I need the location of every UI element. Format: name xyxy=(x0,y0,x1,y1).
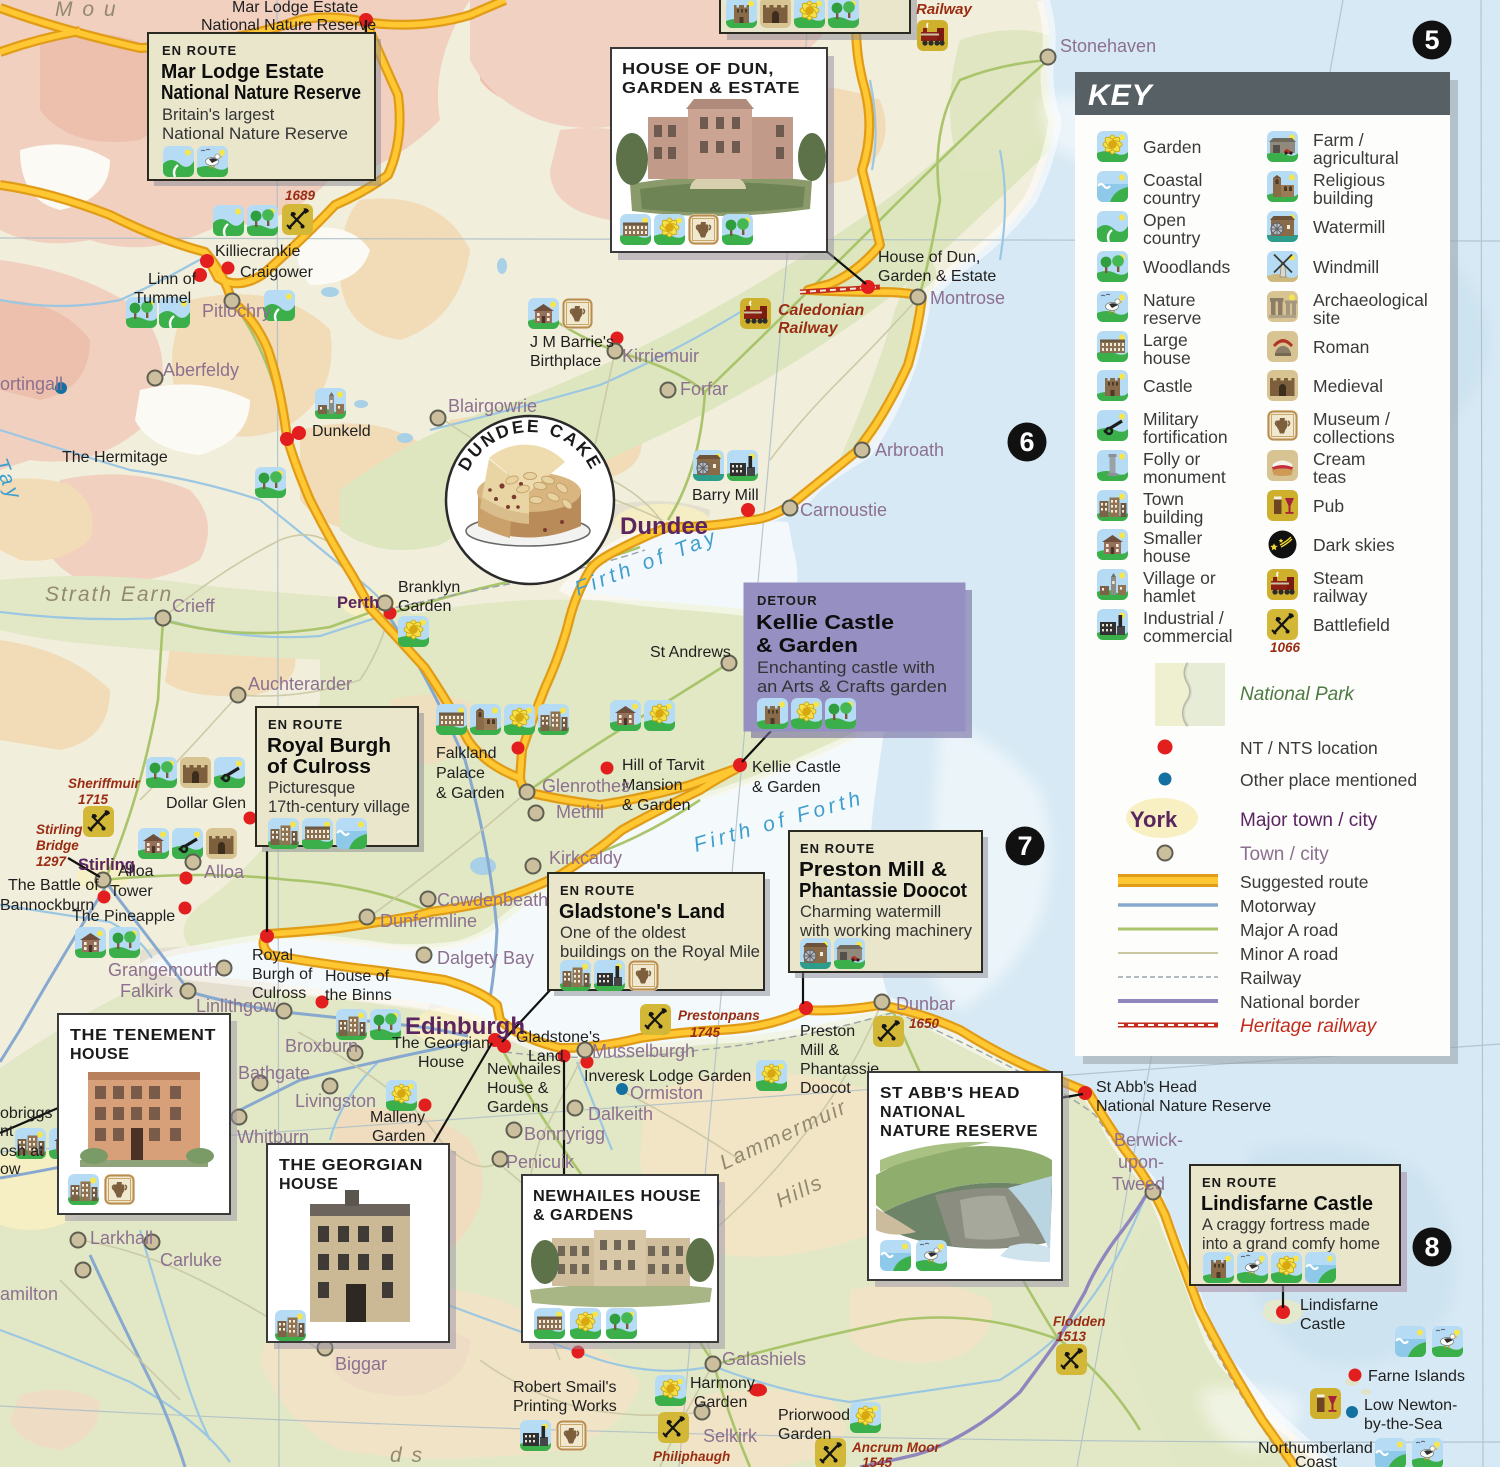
svg-text:Ormiston: Ormiston xyxy=(630,1083,703,1103)
svg-text:National Nature Reserve: National Nature Reserve xyxy=(162,125,348,143)
svg-text:d s: d s xyxy=(390,1444,424,1467)
svg-text:Crieff: Crieff xyxy=(172,596,216,616)
svg-text:Major A road: Major A road xyxy=(1240,920,1338,940)
svg-text:Lindisfarne Castle: Lindisfarne Castle xyxy=(1201,1193,1373,1215)
svg-text:St Abb's Head: St Abb's Head xyxy=(1096,1079,1197,1096)
svg-text:Craigower: Craigower xyxy=(240,264,314,281)
svg-text:1715: 1715 xyxy=(78,792,109,807)
svg-text:GARDEN & ESTATE: GARDEN & ESTATE xyxy=(622,80,800,97)
svg-text:National border: National border xyxy=(1240,992,1360,1012)
svg-text:Forfar: Forfar xyxy=(680,379,728,399)
svg-text:Heritage railway: Heritage railway xyxy=(1240,1016,1378,1037)
svg-text:Military: Military xyxy=(1143,409,1199,429)
svg-text:Battlefield: Battlefield xyxy=(1313,615,1390,635)
svg-text:Watermill: Watermill xyxy=(1313,217,1385,237)
svg-text:Prestonpans: Prestonpans xyxy=(678,1008,760,1023)
svg-text:osh at: osh at xyxy=(0,1143,44,1160)
svg-text:EN ROUTE: EN ROUTE xyxy=(162,43,237,58)
svg-text:Strath Earn: Strath Earn xyxy=(45,583,173,606)
svg-text:Archaeological: Archaeological xyxy=(1313,290,1428,310)
svg-text:site: site xyxy=(1313,308,1340,328)
svg-text:Preston: Preston xyxy=(800,1023,855,1040)
svg-text:into a grand comfy home: into a grand comfy home xyxy=(1202,1235,1380,1253)
svg-text:Phantassie Doocot: Phantassie Doocot xyxy=(799,880,967,902)
svg-text:& Garden: & Garden xyxy=(756,635,858,657)
svg-text:House &: House & xyxy=(487,1080,549,1097)
svg-text:5: 5 xyxy=(1424,25,1439,55)
svg-text:8: 8 xyxy=(1424,1232,1439,1262)
svg-text:EN ROUTE: EN ROUTE xyxy=(800,841,875,856)
svg-text:National Park: National Park xyxy=(1240,684,1356,705)
svg-text:National Nature Reserve: National Nature Reserve xyxy=(201,17,376,34)
svg-text:Culross: Culross xyxy=(252,985,306,1002)
svg-text:Ancrum Moor: Ancrum Moor xyxy=(851,1440,940,1455)
svg-text:buildings on the Royal Mile: buildings on the Royal Mile xyxy=(560,943,760,961)
svg-text:Picturesque: Picturesque xyxy=(268,779,355,797)
svg-text:Open: Open xyxy=(1143,210,1186,230)
svg-text:Larkhall: Larkhall xyxy=(90,1228,153,1248)
svg-text:Woodlands: Woodlands xyxy=(1143,257,1230,277)
svg-text:Cowdenbeath: Cowdenbeath xyxy=(437,890,548,910)
svg-text:Pitlochry: Pitlochry xyxy=(202,301,271,321)
svg-text:Town: Town xyxy=(1143,489,1184,509)
svg-text:NATIONAL: NATIONAL xyxy=(880,1104,965,1121)
svg-text:1297: 1297 xyxy=(36,854,68,869)
svg-text:Broxburn: Broxburn xyxy=(285,1036,358,1056)
svg-text:Garden: Garden xyxy=(398,598,451,615)
svg-text:House: House xyxy=(418,1054,464,1071)
svg-text:Coastal: Coastal xyxy=(1143,170,1202,190)
svg-text:Farm /: Farm / xyxy=(1313,130,1364,150)
svg-text:Large: Large xyxy=(1143,330,1188,350)
svg-text:& GARDENS: & GARDENS xyxy=(533,1207,634,1224)
svg-text:Flodden: Flodden xyxy=(1053,1314,1106,1329)
svg-text:Charming watermill: Charming watermill xyxy=(800,903,941,921)
svg-text:Britain's largest: Britain's largest xyxy=(162,106,275,124)
svg-text:Caledonian: Caledonian xyxy=(778,302,864,319)
svg-text:M o u: M o u xyxy=(55,0,118,21)
svg-text:1689: 1689 xyxy=(285,188,316,203)
svg-text:DETOUR: DETOUR xyxy=(757,593,818,608)
svg-text:1545: 1545 xyxy=(862,1455,893,1467)
svg-text:Harmony: Harmony xyxy=(690,1375,755,1392)
svg-text:Religious: Religious xyxy=(1313,170,1385,190)
svg-text:KEY: KEY xyxy=(1088,79,1155,112)
svg-text:Lindisfarne: Lindisfarne xyxy=(1300,1297,1378,1314)
svg-text:Alloa: Alloa xyxy=(118,863,154,880)
svg-text:Medieval: Medieval xyxy=(1313,376,1383,396)
svg-text:commercial: commercial xyxy=(1143,626,1232,646)
svg-text:Hill of Tarvit: Hill of Tarvit xyxy=(622,757,705,774)
svg-text:Museum /: Museum / xyxy=(1313,409,1390,429)
svg-text:Motorway: Motorway xyxy=(1240,896,1316,916)
svg-text:Priorwood: Priorwood xyxy=(778,1407,850,1424)
svg-text:Perth: Perth xyxy=(337,594,379,612)
svg-text:Falkland: Falkland xyxy=(436,745,496,762)
svg-text:Steam: Steam xyxy=(1313,568,1364,588)
svg-text:Town / city: Town / city xyxy=(1240,844,1329,865)
svg-text:reserve: reserve xyxy=(1143,308,1201,328)
svg-text:& Garden: & Garden xyxy=(622,797,690,814)
svg-text:house: house xyxy=(1143,348,1191,368)
svg-text:7: 7 xyxy=(1017,831,1032,861)
svg-text:Kirriemuir: Kirriemuir xyxy=(622,346,699,366)
svg-text:17th-century village: 17th-century village xyxy=(268,798,410,816)
svg-text:1066: 1066 xyxy=(1270,640,1301,655)
svg-text:Industrial /: Industrial / xyxy=(1143,608,1224,628)
svg-text:Methil: Methil xyxy=(556,802,604,822)
svg-text:teas: teas xyxy=(1313,467,1346,487)
svg-text:Garden: Garden xyxy=(694,1394,747,1411)
svg-text:obriggs: obriggs xyxy=(0,1105,52,1122)
svg-text:Preston Mill &: Preston Mill & xyxy=(799,859,947,881)
svg-text:Dalgety Bay: Dalgety Bay xyxy=(437,948,534,968)
svg-text:Major town / city: Major town / city xyxy=(1240,810,1378,831)
svg-text:Castle: Castle xyxy=(1143,376,1193,396)
svg-text:A craggy fortress made: A craggy fortress made xyxy=(1202,1216,1370,1234)
svg-text:NATURE RESERVE: NATURE RESERVE xyxy=(880,1123,1038,1140)
svg-text:Smaller: Smaller xyxy=(1143,528,1202,548)
svg-text:hamlet: hamlet xyxy=(1143,586,1196,606)
svg-text:ow: ow xyxy=(0,1161,21,1178)
svg-text:Kellie Castle: Kellie Castle xyxy=(752,759,841,776)
svg-text:by-the-Sea: by-the-Sea xyxy=(1364,1416,1442,1433)
svg-text:Malleny: Malleny xyxy=(370,1109,425,1126)
svg-text:Doocot: Doocot xyxy=(800,1080,851,1097)
svg-text:Dark skies: Dark skies xyxy=(1313,535,1395,555)
svg-text:THE TENEMENT: THE TENEMENT xyxy=(70,1027,216,1044)
svg-text:Linn of: Linn of xyxy=(148,271,197,288)
svg-text:Village or: Village or xyxy=(1143,568,1216,588)
svg-text:Nature: Nature xyxy=(1143,290,1196,310)
svg-text:Penicuik: Penicuik xyxy=(506,1152,575,1172)
svg-text:Stonehaven: Stonehaven xyxy=(1060,36,1156,56)
svg-text:building: building xyxy=(1143,507,1203,527)
svg-text:building: building xyxy=(1313,188,1373,208)
svg-text:HOUSE: HOUSE xyxy=(70,1046,129,1063)
svg-text:Dunfermline: Dunfermline xyxy=(380,911,477,931)
svg-text:National Nature Reserve: National Nature Reserve xyxy=(1096,1098,1271,1115)
svg-text:Musselburgh: Musselburgh xyxy=(592,1041,695,1061)
svg-text:Dunkeld: Dunkeld xyxy=(312,423,371,440)
svg-text:Auchterarder: Auchterarder xyxy=(248,674,352,694)
svg-text:Garden: Garden xyxy=(1143,137,1201,157)
svg-text:Alloa: Alloa xyxy=(204,862,245,882)
svg-text:Bridge: Bridge xyxy=(36,838,79,853)
svg-text:Mill &: Mill & xyxy=(800,1042,839,1059)
svg-text:Castle: Castle xyxy=(1300,1316,1345,1333)
svg-text:Montrose: Montrose xyxy=(930,288,1005,308)
svg-text:agricultural: agricultural xyxy=(1313,148,1399,168)
svg-text:House of Dun,: House of Dun, xyxy=(878,249,980,266)
svg-text:country: country xyxy=(1143,228,1201,248)
svg-text:Falkirk: Falkirk xyxy=(120,981,174,1001)
svg-text:National Nature Reserve: National Nature Reserve xyxy=(161,82,361,104)
svg-text:Kellie Castle: Kellie Castle xyxy=(756,612,894,634)
svg-text:Folly or: Folly or xyxy=(1143,449,1201,469)
svg-text:The Hermitage: The Hermitage xyxy=(62,449,168,466)
svg-text:Branklyn: Branklyn xyxy=(398,579,460,596)
svg-text:Garden: Garden xyxy=(372,1128,425,1145)
svg-text:Gladstone's: Gladstone's xyxy=(516,1029,600,1046)
svg-text:of Culross: of Culross xyxy=(267,756,371,778)
svg-text:Bathgate: Bathgate xyxy=(238,1063,310,1083)
svg-text:nt: nt xyxy=(0,1123,14,1140)
svg-text:country: country xyxy=(1143,188,1201,208)
svg-text:Coast: Coast xyxy=(1295,1454,1337,1467)
svg-text:Railway: Railway xyxy=(1240,968,1302,988)
svg-text:NT / NTS location: NT / NTS location xyxy=(1240,738,1378,758)
svg-text:Burgh of: Burgh of xyxy=(252,966,313,983)
svg-text:ortingall: ortingall xyxy=(0,374,63,394)
svg-text:Windmill: Windmill xyxy=(1313,257,1379,277)
svg-text:upon-: upon- xyxy=(1118,1152,1164,1172)
svg-text:Carluke: Carluke xyxy=(160,1250,222,1270)
svg-text:collections: collections xyxy=(1313,427,1395,447)
svg-text:1745: 1745 xyxy=(690,1025,721,1040)
svg-text:HOUSE: HOUSE xyxy=(279,1176,338,1193)
svg-text:Farne Islands: Farne Islands xyxy=(1368,1368,1465,1385)
svg-text:HOUSE OF DUN,: HOUSE OF DUN, xyxy=(622,61,774,78)
svg-text:Sheriffmuir: Sheriffmuir xyxy=(68,776,141,791)
svg-text:Roman: Roman xyxy=(1313,337,1369,357)
svg-text:monument: monument xyxy=(1143,467,1226,487)
svg-text:Birthplace: Birthplace xyxy=(530,353,601,370)
svg-text:Newhailes: Newhailes xyxy=(487,1061,561,1078)
svg-text:Philiphaugh: Philiphaugh xyxy=(653,1449,730,1464)
svg-text:Glenrothes: Glenrothes xyxy=(542,776,630,796)
svg-text:Gladstone's Land: Gladstone's Land xyxy=(559,901,725,923)
svg-text:St Andrews: St Andrews xyxy=(650,644,731,661)
svg-text:Mansion: Mansion xyxy=(622,777,682,794)
svg-text:Stirling: Stirling xyxy=(36,822,83,837)
svg-text:Blairgowrie: Blairgowrie xyxy=(448,396,537,416)
svg-text:with working machinery: with working machinery xyxy=(799,922,973,940)
svg-text:York: York xyxy=(1130,807,1178,832)
svg-text:Selkirk: Selkirk xyxy=(703,1426,758,1446)
svg-text:House of: House of xyxy=(325,968,390,985)
svg-text:Carnoustie: Carnoustie xyxy=(800,500,887,520)
svg-text:amilton: amilton xyxy=(0,1284,58,1304)
svg-text:Tweed: Tweed xyxy=(1112,1174,1165,1194)
svg-text:Grangemouth: Grangemouth xyxy=(108,960,218,980)
svg-text:Railway: Railway xyxy=(778,320,839,337)
svg-text:EN ROUTE: EN ROUTE xyxy=(268,717,343,732)
svg-text:1650: 1650 xyxy=(909,1016,940,1031)
svg-text:Pub: Pub xyxy=(1313,496,1344,516)
svg-text:Galashiels: Galashiels xyxy=(722,1349,806,1369)
svg-text:Killiecrankie: Killiecrankie xyxy=(215,243,300,260)
svg-text:Other place mentioned: Other place mentioned xyxy=(1240,770,1417,790)
svg-text:Royal Burgh: Royal Burgh xyxy=(267,735,391,757)
svg-text:EN ROUTE: EN ROUTE xyxy=(560,883,635,898)
svg-text:Kirkcaldy: Kirkcaldy xyxy=(549,848,622,868)
svg-text:The Georgian: The Georgian xyxy=(392,1035,490,1052)
svg-text:Arbroath: Arbroath xyxy=(875,440,944,460)
svg-text:Bonnyrigg: Bonnyrigg xyxy=(524,1124,605,1144)
svg-text:One of the oldest: One of the oldest xyxy=(560,924,686,942)
svg-text:Dollar Glen: Dollar Glen xyxy=(166,795,246,812)
svg-text:Garden: Garden xyxy=(778,1426,831,1443)
svg-text:Tummel: Tummel xyxy=(134,290,191,307)
svg-text:Minor A road: Minor A road xyxy=(1240,944,1338,964)
svg-text:Mar Lodge Estate: Mar Lodge Estate xyxy=(232,0,358,16)
svg-text:Aberfeldy: Aberfeldy xyxy=(163,360,239,380)
svg-text:Barry Mill: Barry Mill xyxy=(692,487,759,504)
svg-text:Cream: Cream xyxy=(1313,449,1366,469)
svg-text:& Garden: & Garden xyxy=(752,779,820,796)
svg-text:ST ABB'S HEAD: ST ABB'S HEAD xyxy=(880,1085,1020,1102)
svg-text:the Binns: the Binns xyxy=(325,987,392,1004)
svg-text:Dalkeith: Dalkeith xyxy=(588,1104,653,1124)
svg-text:Palace: Palace xyxy=(436,765,485,782)
svg-text:1513: 1513 xyxy=(1056,1329,1087,1344)
svg-text:The Pineapple: The Pineapple xyxy=(72,908,175,925)
svg-text:Low Newton-: Low Newton- xyxy=(1364,1397,1457,1414)
svg-text:fortification: fortification xyxy=(1143,427,1228,447)
svg-text:Mar Lodge Estate: Mar Lodge Estate xyxy=(161,61,324,83)
svg-text:house: house xyxy=(1143,546,1191,566)
svg-text:6: 6 xyxy=(1019,427,1034,457)
svg-text:Biggar: Biggar xyxy=(335,1354,387,1374)
svg-text:Railway: Railway xyxy=(916,1,973,18)
svg-text:Dunbar: Dunbar xyxy=(896,994,955,1014)
svg-text:& Garden: & Garden xyxy=(436,785,504,802)
svg-text:railway: railway xyxy=(1313,586,1368,606)
svg-text:Printing Works: Printing Works xyxy=(513,1398,617,1415)
svg-text:The Battle of: The Battle of xyxy=(8,877,99,894)
svg-text:an Arts & Crafts garden: an Arts & Crafts garden xyxy=(757,678,947,696)
svg-text:Berwick-: Berwick- xyxy=(1114,1130,1183,1150)
svg-text:NEWHAILES HOUSE: NEWHAILES HOUSE xyxy=(533,1188,701,1205)
svg-text:EN ROUTE: EN ROUTE xyxy=(1202,1175,1277,1190)
svg-text:J M Barrie's: J M Barrie's xyxy=(530,334,614,351)
svg-text:Livingston: Livingston xyxy=(295,1091,376,1111)
svg-text:Royal: Royal xyxy=(252,947,293,964)
svg-text:THE GEORGIAN: THE GEORGIAN xyxy=(279,1157,423,1174)
svg-text:Suggested route: Suggested route xyxy=(1240,872,1368,892)
svg-text:Garden & Estate: Garden & Estate xyxy=(878,268,996,285)
svg-text:Tower: Tower xyxy=(110,883,153,900)
svg-text:Enchanting castle with: Enchanting castle with xyxy=(757,659,935,677)
svg-text:Robert Smail's: Robert Smail's xyxy=(513,1379,617,1396)
svg-text:Gardens: Gardens xyxy=(487,1099,548,1116)
